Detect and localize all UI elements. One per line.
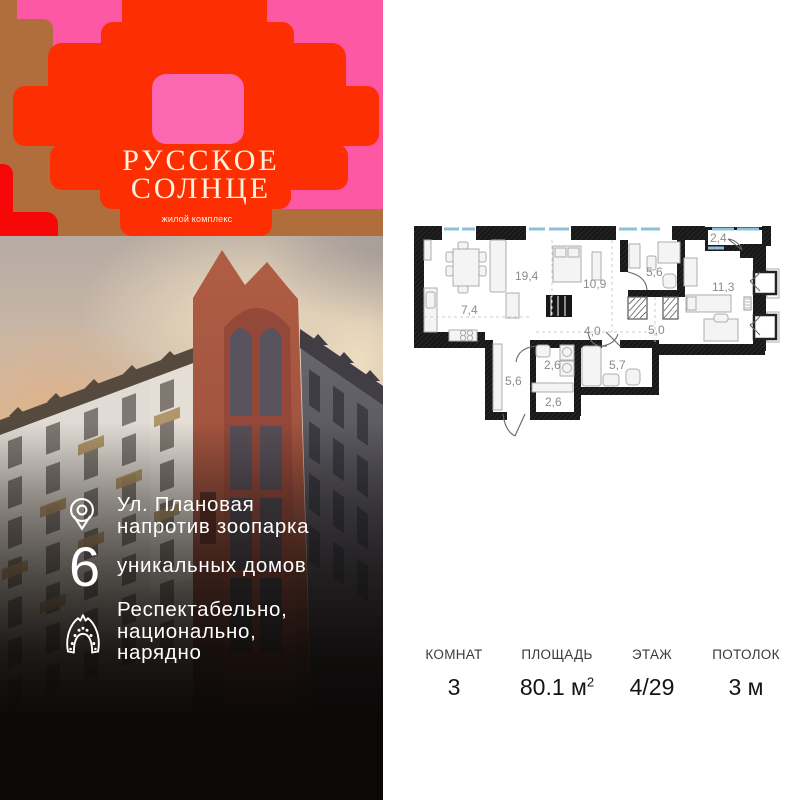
svg-text:19,4: 19,4 — [515, 269, 539, 283]
svg-text:7,4: 7,4 — [461, 303, 478, 317]
svg-text:2,6: 2,6 — [545, 395, 562, 409]
svg-text:2,4: 2,4 — [710, 231, 727, 245]
svg-text:5,6: 5,6 — [646, 265, 663, 279]
svg-text:5,6: 5,6 — [505, 374, 522, 388]
svg-text:5,7: 5,7 — [609, 358, 626, 372]
svg-text:11,3: 11,3 — [712, 280, 735, 294]
svg-text:2,6: 2,6 — [544, 358, 561, 372]
svg-text:4,0: 4,0 — [584, 324, 601, 338]
svg-text:5,0: 5,0 — [648, 323, 665, 337]
svg-text:10,9: 10,9 — [583, 277, 607, 291]
